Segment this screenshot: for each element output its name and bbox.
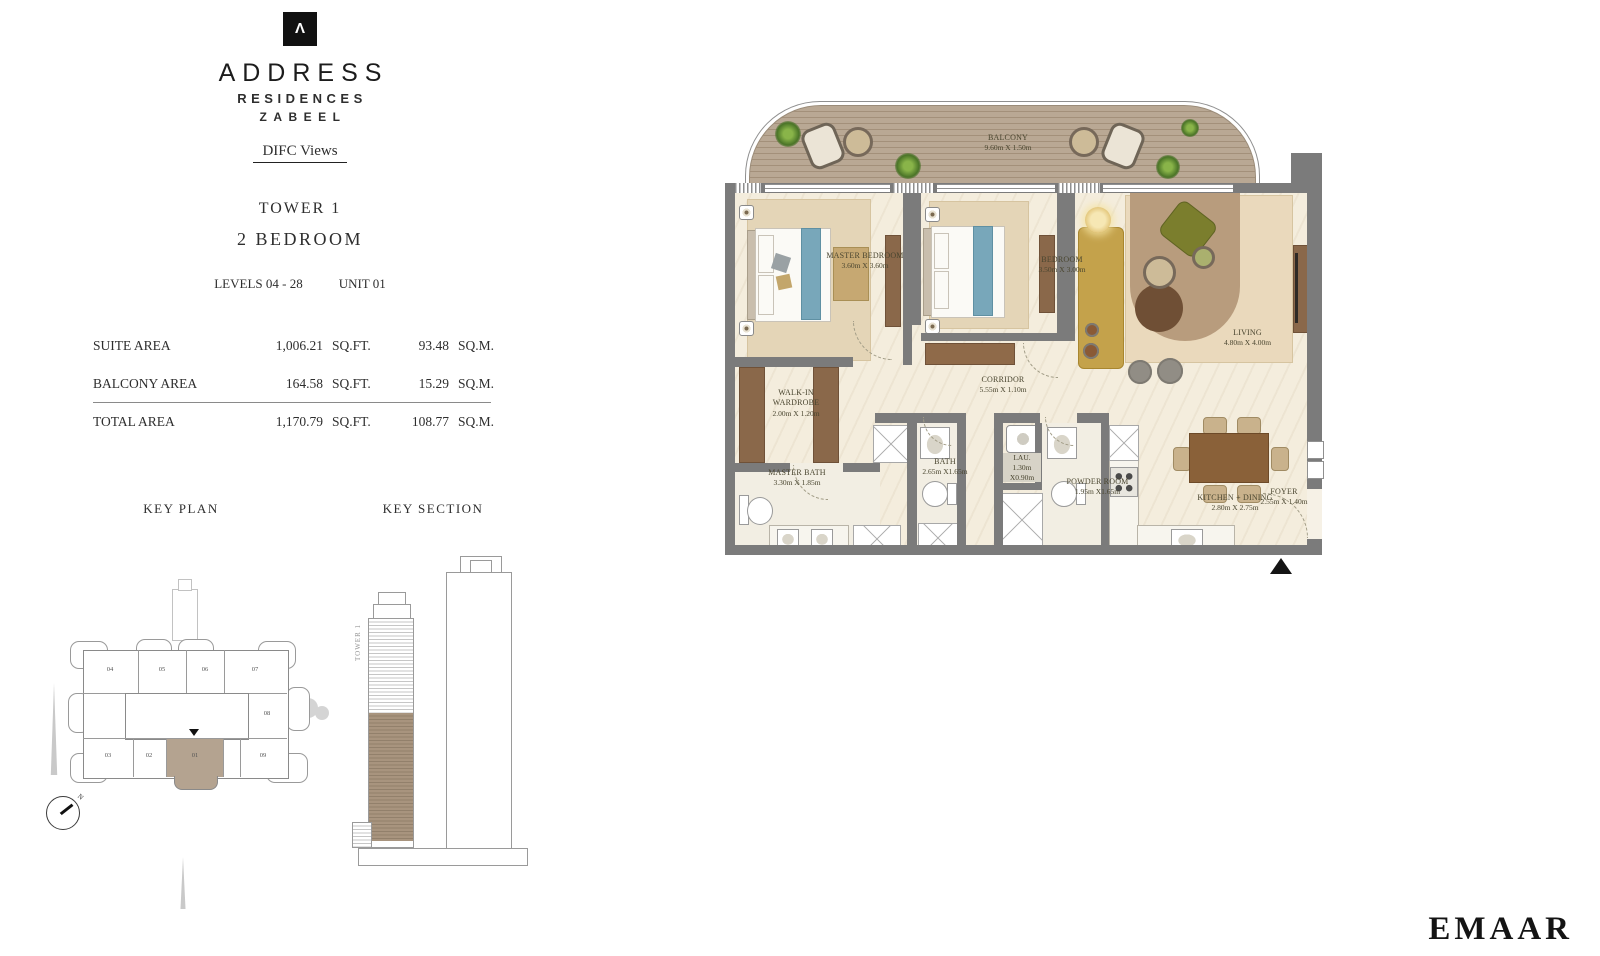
tower-title: TOWER 1 <box>130 200 470 218</box>
tower-silhouette <box>176 857 190 909</box>
exterior-wall <box>725 545 1322 555</box>
table-row: TOTAL AREA 1,170.79 SQ.FT. 108.77 SQ.M. <box>93 414 493 430</box>
levels-unit-row: LEVELS 04 - 28 UNIT 01 <box>130 276 470 292</box>
toilet <box>922 481 948 507</box>
area-sqm: 108.77 <box>381 414 449 430</box>
pillow <box>934 271 949 309</box>
area-sqm: 93.48 <box>381 338 449 354</box>
area-label: BALCONY AREA <box>93 376 223 392</box>
room-label-bath: BATH 2.65m X1.65m <box>905 457 985 477</box>
speaker-icon <box>739 321 754 336</box>
interior-wall <box>907 423 917 555</box>
exterior-wall <box>725 183 735 555</box>
north-arrow <box>1270 558 1292 574</box>
compass: N <box>46 796 80 830</box>
sqft-unit: SQ.FT. <box>323 338 381 354</box>
pillow <box>758 275 774 315</box>
area-sqft: 1,170.79 <box>223 414 323 430</box>
tower1-upper-floors <box>369 619 413 713</box>
unit-type-title: 2 BEDROOM <box>130 229 470 250</box>
accent-pillow <box>776 274 793 291</box>
tower2-shaft <box>446 572 512 850</box>
toilet-tank <box>947 483 957 505</box>
key-section-diagram: TOWER 1 <box>340 540 540 875</box>
dining-table <box>1189 433 1269 483</box>
keyplan-unit-number: 07 <box>240 666 270 673</box>
keyplan-partition <box>138 650 139 693</box>
project-name-wrap: DIFC Views <box>130 124 470 163</box>
compass-needle-icon <box>52 804 73 821</box>
speaker-icon <box>739 205 754 220</box>
sqm-unit: SQ.M. <box>449 376 493 392</box>
tower-silhouette <box>178 579 192 591</box>
keyplan-partition <box>223 738 224 777</box>
keyplan-unit-number: 08 <box>252 710 282 717</box>
pouf <box>1128 360 1152 384</box>
key-plan-title: KEY PLAN <box>100 501 262 517</box>
room-label-bedroom: BEDROOM 3.50m X 3.00m <box>1019 255 1105 275</box>
area-sqft: 1,006.21 <box>223 338 323 354</box>
room-label-master-bath: MASTER BATH 3.30m X 1.85m <box>745 468 849 488</box>
keyplan-unit-number: 02 <box>134 752 164 759</box>
table-divider <box>93 402 491 403</box>
brand-block: Λ ADDRESS RESIDENCES ZABEEL DIFC Views T… <box>130 12 470 292</box>
area-label: TOTAL AREA <box>93 414 223 430</box>
sqm-unit: SQ.M. <box>449 414 493 430</box>
brand-name: ADDRESS <box>130 59 470 88</box>
burj-khalifa-silhouette <box>46 683 62 775</box>
deck-side-table <box>1069 127 1099 157</box>
balcony-label: BALCONY 9.60m X 1.50m <box>963 133 1053 153</box>
room-label-corridor: CORRIDOR 5.55m X 1.10m <box>963 375 1043 395</box>
deck-plant <box>1156 155 1180 179</box>
unit-label: UNIT 01 <box>339 276 386 292</box>
tower1-highlighted-floors <box>369 713 413 841</box>
address-logo-icon: Λ <box>283 12 317 46</box>
window <box>1103 184 1233 192</box>
tower-silhouette <box>172 589 198 641</box>
sqft-unit: SQ.FT. <box>323 376 381 392</box>
pillow <box>934 233 949 269</box>
project-name: DIFC Views <box>253 143 346 163</box>
brand-line2: RESIDENCES <box>130 91 470 106</box>
area-sqm: 15.29 <box>381 376 449 392</box>
deck-side-table <box>843 127 873 157</box>
keyplan-unit-number: 06 <box>190 666 220 673</box>
closet <box>1001 493 1043 547</box>
window-mullion <box>893 183 933 193</box>
side-table <box>1192 246 1215 269</box>
room-label-master-bedroom: MASTER BEDROOM 3.60m X 3.60m <box>820 251 910 271</box>
room-label-powder: POWDER ROOM 1.95m X1.65m <box>1055 477 1140 497</box>
tree-silhouette <box>315 706 329 720</box>
sofa-cushion <box>1083 343 1099 359</box>
levels-label: LEVELS 04 - 28 <box>214 276 302 292</box>
window <box>937 184 1055 192</box>
keyplan-partition <box>240 738 241 777</box>
floor-plan: BALCONY 9.60m X 1.50m <box>725 95 1325 580</box>
shower <box>873 425 909 463</box>
toilet <box>747 497 773 525</box>
window <box>765 184 890 192</box>
sofa-cushion <box>1085 323 1099 337</box>
key-section-title: KEY SECTION <box>352 501 514 517</box>
speaker-icon <box>925 319 940 334</box>
interior-wall <box>921 333 1057 341</box>
keyplan-partition <box>186 650 187 693</box>
tower1-shaft <box>368 618 414 848</box>
keyplan-partition <box>224 650 225 693</box>
sqft-unit: SQ.FT. <box>323 414 381 430</box>
coffee-table <box>1143 256 1176 289</box>
floor-lamp <box>1085 207 1111 233</box>
dining-chair <box>1271 447 1289 471</box>
room-label-living: LIVING 4.80m X 4.00m <box>1205 328 1290 348</box>
keyplan-unit-number: 01 <box>180 752 210 759</box>
brand-line3: ZABEEL <box>130 110 470 124</box>
corridor-console <box>925 343 1015 365</box>
area-sqft: 164.58 <box>223 376 323 392</box>
round-brown-rug <box>1135 284 1183 332</box>
table-row: SUITE AREA 1,006.21 SQ.FT. 93.48 SQ.M. <box>93 338 493 354</box>
deck-plant <box>775 121 801 147</box>
interior-wall <box>903 325 912 365</box>
interior-wall <box>735 357 853 367</box>
keyplan-unit-number: 05 <box>147 666 177 673</box>
sqm-unit: SQ.M. <box>449 338 493 354</box>
exterior-wall <box>1291 153 1322 187</box>
deck-plant <box>1181 119 1199 137</box>
tower1-annex <box>352 822 372 848</box>
keyplan-unit-number: 04 <box>95 666 125 673</box>
key-plan-diagram: 04 05 06 07 08 03 02 01 09 N <box>40 545 340 880</box>
room-label-foyer: FOYER 2.55m X 1.40m <box>1249 487 1319 507</box>
interior-wall <box>1003 483 1042 490</box>
laundry-label: LAU. 1.30m X0.90m <box>1003 453 1041 482</box>
window <box>1307 441 1324 459</box>
window-mullion <box>1058 183 1100 193</box>
window-mullion <box>735 183 761 193</box>
table-row: BALCONY AREA 164.58 SQ.FT. 15.29 SQ.M. <box>93 376 493 392</box>
area-label: SUITE AREA <box>93 338 223 354</box>
room-label-wardrobe: WALK-IN WARDROBE 2.00m X 1.20m <box>763 388 829 419</box>
emaar-logo: EMAAR <box>1428 911 1573 948</box>
bed-runner <box>973 226 993 316</box>
interior-wall <box>1003 413 1040 423</box>
tower1-vertical-label: TOWER 1 <box>354 624 362 661</box>
compass-north-label: N <box>76 792 85 801</box>
deck-plant <box>895 153 921 179</box>
keyplan-core <box>125 693 249 740</box>
pouf <box>1157 358 1183 384</box>
keyplan-balcony-bump <box>286 687 310 731</box>
interior-wall <box>1077 413 1101 423</box>
dresser <box>885 235 901 327</box>
interior-wall <box>957 413 966 555</box>
bed-runner <box>801 228 821 320</box>
keyplan-unit-01-balcony <box>174 776 218 790</box>
fridge <box>1109 425 1139 461</box>
wardrobe <box>739 367 765 463</box>
tv-icon <box>1295 253 1298 323</box>
window <box>1307 461 1324 479</box>
interior-wall <box>994 413 1003 555</box>
keyplan-unit-number: 03 <box>93 752 123 759</box>
podium-base <box>358 848 528 866</box>
unit-pointer-icon <box>189 729 199 736</box>
keyplan-unit-number: 09 <box>248 752 278 759</box>
speaker-icon <box>925 207 940 222</box>
